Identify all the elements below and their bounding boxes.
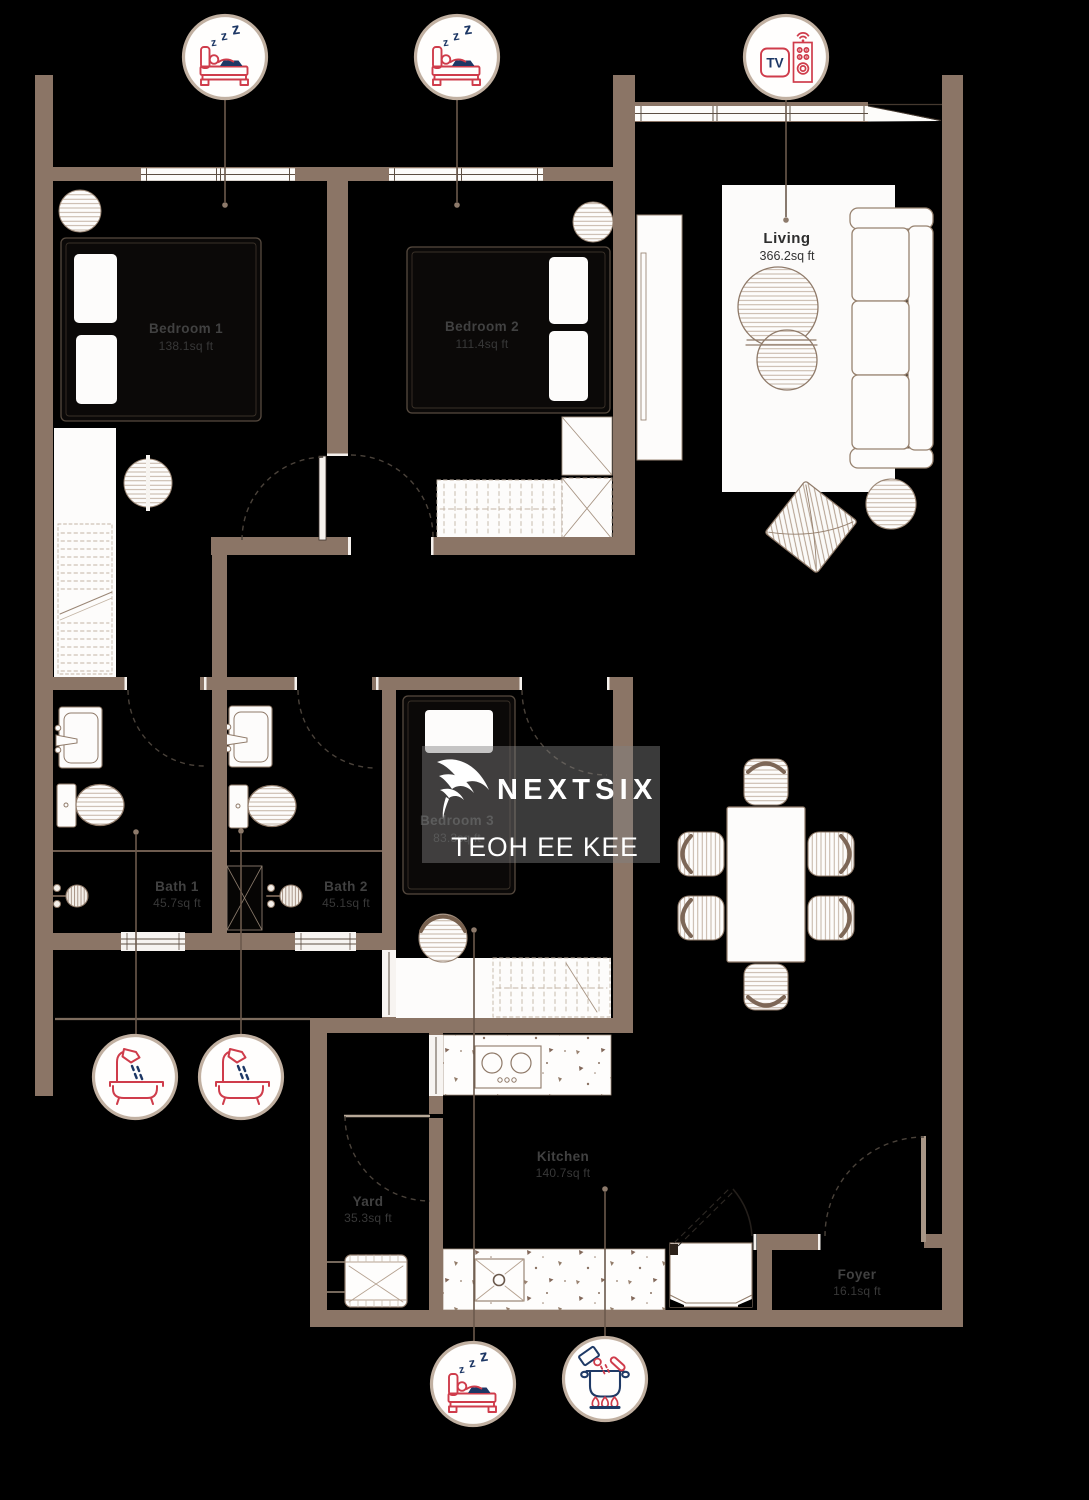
svg-text:Bath 2: Bath 2	[324, 879, 368, 894]
svg-text:366.2sq ft: 366.2sq ft	[760, 249, 815, 263]
svg-text:Bedroom 1: Bedroom 1	[149, 321, 223, 336]
svg-text:Bath 1: Bath 1	[155, 879, 199, 894]
svg-text:TEOH EE KEE: TEOH EE KEE	[451, 832, 639, 862]
svg-text:Living: Living	[763, 230, 810, 247]
svg-text:16.1sq ft: 16.1sq ft	[833, 1284, 881, 1298]
svg-text:Foyer: Foyer	[838, 1267, 877, 1282]
svg-text:140.7sq ft: 140.7sq ft	[536, 1166, 591, 1180]
svg-text:TV: TV	[766, 56, 783, 71]
svg-text:111.4sq ft: 111.4sq ft	[456, 337, 509, 351]
svg-text:45.1sq ft: 45.1sq ft	[322, 896, 370, 910]
svg-text:45.7sq ft: 45.7sq ft	[153, 896, 201, 910]
svg-text:Yard: Yard	[353, 1194, 384, 1209]
svg-text:Kitchen: Kitchen	[537, 1149, 589, 1164]
svg-text:138.1sq ft: 138.1sq ft	[159, 339, 214, 353]
svg-text:NEXTSIX: NEXTSIX	[497, 774, 658, 806]
svg-text:35.3sq ft: 35.3sq ft	[344, 1211, 392, 1225]
svg-text:Bedroom 2: Bedroom 2	[445, 319, 519, 334]
